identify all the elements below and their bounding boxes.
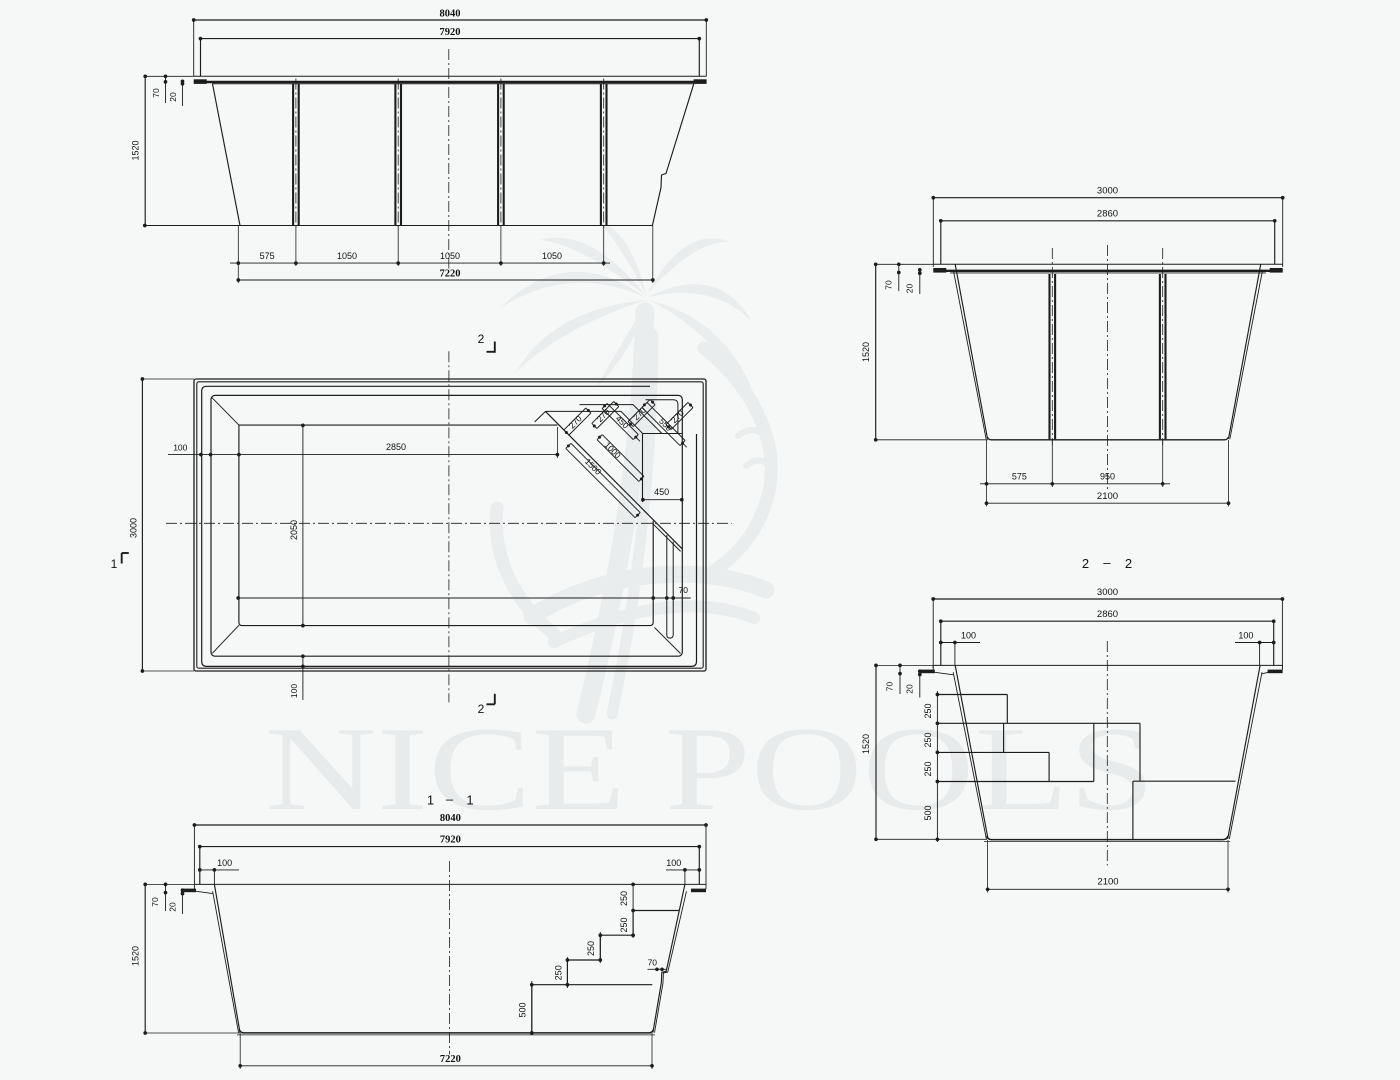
svg-text:2850: 2850 xyxy=(386,442,406,452)
svg-text:1520: 1520 xyxy=(861,342,871,362)
svg-text:7920: 7920 xyxy=(440,835,461,846)
svg-text:20: 20 xyxy=(168,92,178,102)
svg-text:1050: 1050 xyxy=(440,251,460,261)
svg-text:70: 70 xyxy=(151,88,161,98)
svg-text:1: 1 xyxy=(466,793,473,808)
svg-text:70: 70 xyxy=(885,682,895,692)
svg-text:20: 20 xyxy=(904,684,914,694)
svg-text:100: 100 xyxy=(173,443,187,453)
svg-text:2860: 2860 xyxy=(1097,609,1118,620)
svg-text:70: 70 xyxy=(679,585,689,595)
svg-text:100: 100 xyxy=(961,630,976,640)
svg-text:2: 2 xyxy=(478,702,485,716)
svg-text:8040: 8040 xyxy=(440,813,461,824)
svg-text:250: 250 xyxy=(586,941,596,956)
svg-text:2860: 2860 xyxy=(1097,209,1118,220)
svg-text:100: 100 xyxy=(666,858,681,868)
svg-text:1050: 1050 xyxy=(542,251,562,261)
svg-text:250: 250 xyxy=(923,732,933,747)
svg-text:70: 70 xyxy=(648,957,658,967)
svg-text:3000: 3000 xyxy=(1097,186,1118,197)
svg-text:3000: 3000 xyxy=(1097,587,1118,598)
svg-text:–: – xyxy=(446,792,454,807)
svg-text:950: 950 xyxy=(1100,472,1115,482)
svg-text:100: 100 xyxy=(289,684,299,698)
svg-text:1520: 1520 xyxy=(131,946,141,966)
svg-text:500: 500 xyxy=(518,1002,528,1017)
svg-text:70: 70 xyxy=(150,897,160,907)
svg-text:–: – xyxy=(1103,555,1111,570)
svg-text:1520: 1520 xyxy=(131,140,141,160)
svg-text:8040: 8040 xyxy=(440,9,461,20)
svg-text:2: 2 xyxy=(1082,556,1089,571)
svg-text:3000: 3000 xyxy=(129,518,139,538)
svg-text:250: 250 xyxy=(923,703,933,718)
svg-text:1: 1 xyxy=(427,793,434,808)
svg-text:20: 20 xyxy=(904,284,914,294)
svg-text:20: 20 xyxy=(167,902,177,912)
svg-text:100: 100 xyxy=(217,858,232,868)
svg-text:1: 1 xyxy=(111,557,118,571)
svg-text:250: 250 xyxy=(553,965,563,980)
svg-text:1050: 1050 xyxy=(337,251,357,261)
svg-text:250: 250 xyxy=(923,761,933,776)
svg-text:7920: 7920 xyxy=(440,27,461,38)
svg-text:2100: 2100 xyxy=(1097,876,1118,887)
svg-text:1520: 1520 xyxy=(861,734,871,754)
svg-text:575: 575 xyxy=(1012,472,1027,482)
svg-text:7220: 7220 xyxy=(440,1054,461,1065)
svg-text:250: 250 xyxy=(619,891,629,906)
svg-text:2100: 2100 xyxy=(1097,491,1118,502)
svg-text:500: 500 xyxy=(923,805,933,820)
svg-text:NICE POOLS: NICE POOLS xyxy=(265,702,1155,835)
svg-text:2: 2 xyxy=(1125,556,1132,571)
svg-text:450: 450 xyxy=(654,487,669,497)
svg-text:250: 250 xyxy=(619,917,629,932)
svg-text:575: 575 xyxy=(260,251,275,261)
svg-text:7220: 7220 xyxy=(440,269,461,280)
svg-text:100: 100 xyxy=(1238,630,1253,640)
svg-text:2: 2 xyxy=(478,332,485,346)
svg-text:70: 70 xyxy=(884,280,894,290)
